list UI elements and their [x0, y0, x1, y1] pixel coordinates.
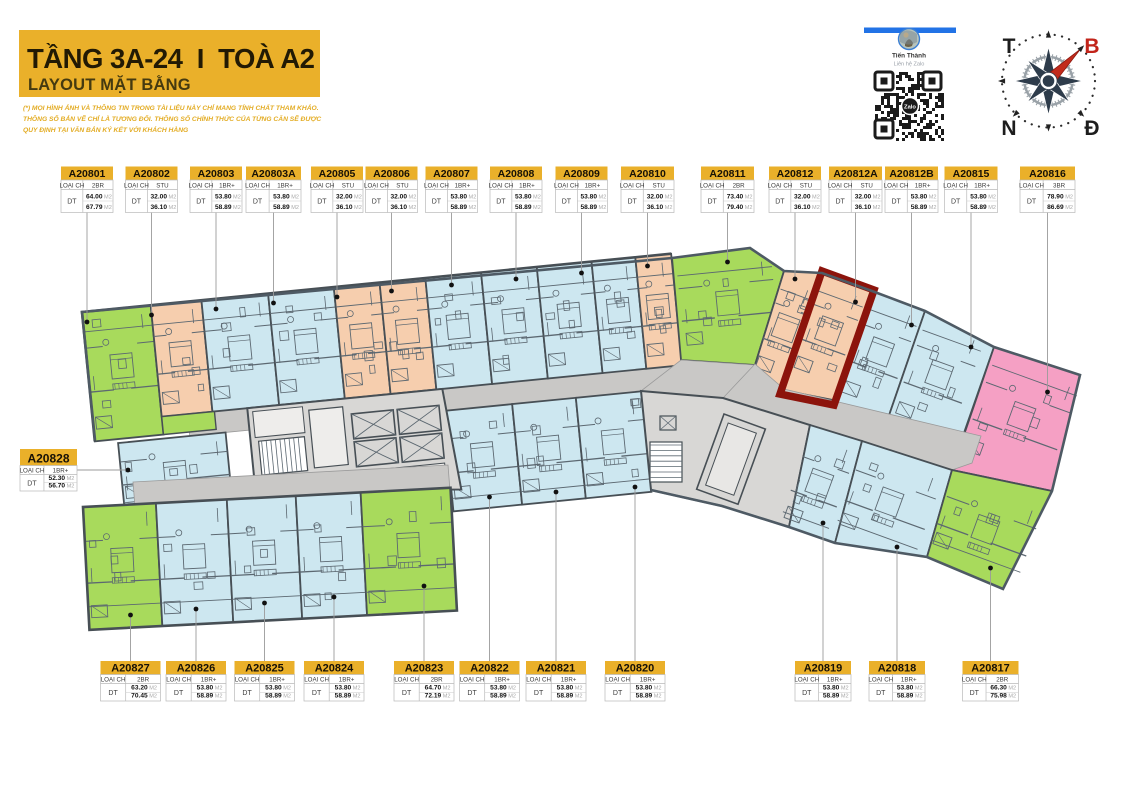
svg-text:36.10 M2: 36.10 M2	[336, 204, 362, 211]
svg-text:36.10 M2: 36.10 M2	[855, 204, 881, 211]
svg-text:32.00 M2: 32.00 M2	[390, 193, 416, 200]
svg-text:58.89 M2: 58.89 M2	[335, 693, 361, 700]
svg-text:A20824: A20824	[315, 662, 354, 674]
svg-text:78.90 M2: 78.90 M2	[1047, 193, 1073, 200]
svg-text:53.80 M2: 53.80 M2	[970, 193, 996, 200]
svg-text:53.80 M2: 53.80 M2	[897, 685, 923, 692]
svg-text:A20816: A20816	[1029, 168, 1066, 180]
svg-text:58.89 M2: 58.89 M2	[636, 693, 662, 700]
svg-text:32.00 M2: 32.00 M2	[647, 193, 673, 200]
svg-text:36.10 M2: 36.10 M2	[647, 204, 673, 211]
svg-text:QUY ĐỊNH TẠI VĂN BẢN KÝ KẾT VỚ: QUY ĐỊNH TẠI VĂN BẢN KÝ KẾT VỚI KHÁCH HÀ…	[23, 125, 188, 134]
svg-text:LOẠI CH: LOẠI CH	[101, 676, 126, 683]
svg-text:A20825: A20825	[245, 662, 284, 674]
svg-text:A20826: A20826	[177, 662, 216, 674]
svg-text:STU: STU	[800, 182, 812, 189]
svg-text:DT: DT	[802, 690, 812, 697]
svg-text:DT: DT	[707, 199, 717, 206]
svg-text:1BR+: 1BR+	[827, 676, 843, 683]
svg-text:LOẠI CH: LOẠI CH	[794, 676, 819, 683]
svg-text:58.89 M2: 58.89 M2	[515, 204, 541, 211]
svg-text:A20809: A20809	[563, 168, 600, 180]
svg-text:53.80 M2: 53.80 M2	[911, 193, 937, 200]
svg-text:LOẠI CH: LOẠI CH	[828, 182, 853, 189]
svg-text:LOẠI CH: LOẠI CH	[394, 676, 419, 683]
svg-text:DT: DT	[108, 690, 118, 697]
svg-text:A20803: A20803	[198, 168, 235, 180]
svg-text:2BR: 2BR	[92, 182, 105, 189]
svg-text:53.80 M2: 53.80 M2	[197, 685, 223, 692]
svg-text:A20803A: A20803A	[251, 168, 296, 180]
svg-text:A20818: A20818	[878, 662, 917, 674]
svg-text:66.30 M2: 66.30 M2	[990, 685, 1016, 692]
svg-text:1BR+: 1BR+	[915, 182, 931, 189]
svg-text:53.80 M2: 53.80 M2	[823, 685, 849, 692]
svg-text:A20821: A20821	[537, 662, 576, 674]
svg-text:75.98 M2: 75.98 M2	[990, 693, 1016, 700]
svg-text:A20815: A20815	[953, 168, 990, 180]
svg-text:DT: DT	[317, 199, 327, 206]
svg-text:LOẠI CH: LOẠI CH	[526, 676, 551, 683]
svg-text:58.89 M2: 58.89 M2	[580, 204, 606, 211]
svg-text:DT: DT	[835, 199, 845, 206]
svg-text:53.80 M2: 53.80 M2	[557, 685, 583, 692]
svg-text:64.00 M2: 64.00 M2	[86, 193, 112, 200]
svg-text:Tiến Thành: Tiến Thành	[892, 52, 926, 60]
svg-text:72.19 M2: 72.19 M2	[425, 693, 451, 700]
svg-text:58.89 M2: 58.89 M2	[557, 693, 583, 700]
svg-text:A20812: A20812	[777, 168, 814, 180]
svg-text:32.00 M2: 32.00 M2	[794, 193, 820, 200]
svg-text:LOẠI CH: LOẠI CH	[189, 182, 214, 189]
svg-text:LOẠI CH: LOẠI CH	[235, 676, 260, 683]
svg-text:DT: DT	[891, 199, 901, 206]
svg-text:LOẠI CH: LOẠI CH	[310, 182, 335, 189]
svg-text:73.40 M2: 73.40 M2	[727, 193, 753, 200]
svg-text:LOẠI CH: LOẠI CH	[620, 182, 645, 189]
svg-text:58.89 M2: 58.89 M2	[215, 204, 241, 211]
svg-text:53.80 M2: 53.80 M2	[490, 685, 516, 692]
svg-text:58.89 M2: 58.89 M2	[970, 204, 996, 211]
svg-text:1BR+: 1BR+	[585, 182, 601, 189]
svg-text:DT: DT	[562, 199, 572, 206]
svg-text:LOẠI CH: LOẠI CH	[962, 676, 987, 683]
svg-text:STU: STU	[156, 182, 168, 189]
svg-text:DT: DT	[174, 690, 184, 697]
svg-text:LOẠI CH: LOẠI CH	[868, 676, 893, 683]
svg-text:DT: DT	[627, 199, 637, 206]
svg-text:DT: DT	[372, 199, 382, 206]
svg-text:2BR: 2BR	[137, 676, 150, 683]
svg-text:58.89 M2: 58.89 M2	[273, 204, 299, 211]
svg-text:LOẠI CH: LOẠI CH	[554, 182, 579, 189]
svg-text:53.80 M2: 53.80 M2	[265, 685, 291, 692]
svg-text:Liên hệ Zalo: Liên hệ Zalo	[894, 62, 925, 68]
svg-text:1BR+: 1BR+	[53, 467, 69, 474]
svg-text:1BR+: 1BR+	[339, 676, 355, 683]
svg-text:LOẠI CH: LOẠI CH	[245, 182, 270, 189]
svg-text:70.45 M2: 70.45 M2	[131, 693, 157, 700]
svg-text:LOẠI CH: LOẠI CH	[605, 676, 630, 683]
svg-text:B: B	[1084, 35, 1099, 58]
svg-text:2BR: 2BR	[996, 676, 1009, 683]
svg-text:LAYOUT MẶT BẰNG: LAYOUT MẶT BẰNG	[28, 75, 191, 94]
svg-text:56.70 M2: 56.70 M2	[49, 483, 75, 490]
svg-text:53.80 M2: 53.80 M2	[515, 193, 541, 200]
svg-text:DT: DT	[432, 199, 442, 206]
svg-text:STU: STU	[342, 182, 354, 189]
svg-text:1BR+: 1BR+	[974, 182, 990, 189]
svg-text:DT: DT	[1027, 199, 1037, 206]
svg-text:86.69 M2: 86.69 M2	[1047, 204, 1073, 211]
svg-text:2BR: 2BR	[431, 676, 444, 683]
svg-text:A20812B: A20812B	[889, 168, 934, 180]
svg-text:1BR+: 1BR+	[561, 676, 577, 683]
svg-text:1BR+: 1BR+	[219, 182, 235, 189]
svg-text:58.89 M2: 58.89 M2	[897, 693, 923, 700]
svg-text:A20828: A20828	[27, 451, 69, 465]
svg-text:3BR: 3BR	[1053, 182, 1066, 189]
svg-text:STU: STU	[652, 182, 664, 189]
svg-text:58.89 M2: 58.89 M2	[911, 204, 937, 211]
svg-text:79.40 M2: 79.40 M2	[727, 204, 753, 211]
svg-text:LOẠI CH: LOẠI CH	[60, 182, 85, 189]
svg-text:DT: DT	[613, 690, 623, 697]
svg-text:DT: DT	[876, 690, 886, 697]
svg-text:A20811: A20811	[709, 168, 745, 180]
svg-text:DT: DT	[253, 199, 263, 206]
svg-text:53.80 M2: 53.80 M2	[335, 685, 361, 692]
svg-text:STU: STU	[396, 182, 408, 189]
svg-text:DT: DT	[534, 690, 544, 697]
svg-text:STU: STU	[860, 182, 872, 189]
svg-text:32.00 M2: 32.00 M2	[855, 193, 881, 200]
svg-text:58.89 M2: 58.89 M2	[197, 693, 223, 700]
svg-text:LOẠI CH: LOẠI CH	[884, 182, 909, 189]
svg-text:58.89 M2: 58.89 M2	[490, 693, 516, 700]
svg-text:A20807: A20807	[433, 168, 470, 180]
svg-text:32.00 M2: 32.00 M2	[336, 193, 362, 200]
svg-text:T: T	[1003, 35, 1016, 58]
svg-text:LOẠI CH: LOẠI CH	[943, 182, 968, 189]
svg-text:LOẠI CH: LOẠI CH	[364, 182, 389, 189]
svg-text:LOẠI CH: LOẠI CH	[700, 182, 725, 189]
svg-text:DT: DT	[132, 199, 142, 206]
svg-text:53.80 M2: 53.80 M2	[215, 193, 241, 200]
svg-text:DT: DT	[951, 199, 961, 206]
svg-text:Đ: Đ	[1084, 117, 1099, 140]
svg-text:64.70 M2: 64.70 M2	[425, 685, 451, 692]
svg-text:DT: DT	[196, 199, 206, 206]
svg-text:58.89 M2: 58.89 M2	[823, 693, 849, 700]
svg-text:DT: DT	[775, 199, 785, 206]
svg-text:63.20 M2: 63.20 M2	[131, 685, 157, 692]
svg-text:TẦNG 3A-24 I TOÀ A2: TẦNG 3A-24 I TOÀ A2	[27, 43, 315, 74]
svg-text:1BR+: 1BR+	[201, 676, 217, 683]
svg-text:DT: DT	[67, 199, 77, 206]
svg-text:67.79 M2: 67.79 M2	[86, 204, 112, 211]
svg-text:1BR+: 1BR+	[277, 182, 293, 189]
svg-text:A20812A: A20812A	[833, 168, 878, 180]
svg-text:A20823: A20823	[405, 662, 444, 674]
svg-text:52.30 M2: 52.30 M2	[49, 475, 75, 482]
svg-text:LOẠI CH: LOẠI CH	[460, 676, 485, 683]
svg-text:1BR+: 1BR+	[494, 676, 510, 683]
svg-text:N: N	[1001, 117, 1016, 140]
svg-text:A20810: A20810	[629, 168, 666, 180]
svg-text:1BR+: 1BR+	[901, 676, 917, 683]
svg-text:THÔNG SỐ BẢN VẼ CHỈ LÀ TƯƠNG Đ: THÔNG SỐ BẢN VẼ CHỈ LÀ TƯƠNG ĐỐI. THÔNG …	[23, 114, 321, 123]
svg-text:32.00 M2: 32.00 M2	[150, 193, 176, 200]
svg-text:LOẠI CH: LOẠI CH	[1019, 182, 1044, 189]
svg-text:1BR+: 1BR+	[519, 182, 535, 189]
svg-text:A20817: A20817	[971, 662, 1010, 674]
svg-text:36.10 M2: 36.10 M2	[390, 204, 416, 211]
svg-text:36.10 M2: 36.10 M2	[150, 204, 176, 211]
svg-text:A20827: A20827	[111, 662, 150, 674]
svg-text:A20805: A20805	[319, 168, 356, 180]
svg-text:LOẠI CH: LOẠI CH	[20, 467, 45, 474]
svg-text:LOẠI CH: LOẠI CH	[124, 182, 149, 189]
svg-text:A20820: A20820	[616, 662, 655, 674]
svg-text:36.10 M2: 36.10 M2	[794, 204, 820, 211]
svg-text:DT: DT	[402, 690, 412, 697]
svg-text:1BR+: 1BR+	[455, 182, 471, 189]
svg-text:A20808: A20808	[498, 168, 535, 180]
svg-text:LOẠI CH: LOẠI CH	[424, 182, 449, 189]
svg-text:DT: DT	[312, 690, 322, 697]
svg-text:58.89 M2: 58.89 M2	[450, 204, 476, 211]
svg-text:(*) MỌI HÌNH ẢNH VÀ THÔNG TIN: (*) MỌI HÌNH ẢNH VÀ THÔNG TIN TRONG TÀI …	[23, 103, 319, 112]
svg-text:53.80 M2: 53.80 M2	[580, 193, 606, 200]
svg-text:58.89 M2: 58.89 M2	[265, 693, 291, 700]
svg-text:LOẠI CH: LOẠI CH	[489, 182, 514, 189]
svg-text:1BR+: 1BR+	[269, 676, 285, 683]
svg-text:53.80 M2: 53.80 M2	[636, 685, 662, 692]
svg-text:LOẠI CH: LOẠI CH	[166, 676, 191, 683]
svg-text:DT: DT	[242, 690, 252, 697]
svg-text:Zalo: Zalo	[904, 105, 916, 111]
svg-text:53.80 M2: 53.80 M2	[273, 193, 299, 200]
svg-text:DT: DT	[970, 690, 980, 697]
svg-text:LOẠI CH: LOẠI CH	[768, 182, 793, 189]
svg-text:DT: DT	[467, 690, 477, 697]
svg-text:DT: DT	[496, 199, 506, 206]
svg-text:DT: DT	[27, 480, 37, 487]
svg-text:A20822: A20822	[470, 662, 509, 674]
svg-text:2BR: 2BR	[733, 182, 746, 189]
svg-text:A20819: A20819	[804, 662, 843, 674]
svg-text:LOẠI CH: LOẠI CH	[304, 676, 329, 683]
svg-text:53.80 M2: 53.80 M2	[450, 193, 476, 200]
svg-text:A20801: A20801	[69, 168, 106, 180]
svg-text:1BR+: 1BR+	[640, 676, 656, 683]
svg-text:A20806: A20806	[373, 168, 410, 180]
svg-text:A20802: A20802	[133, 168, 170, 180]
